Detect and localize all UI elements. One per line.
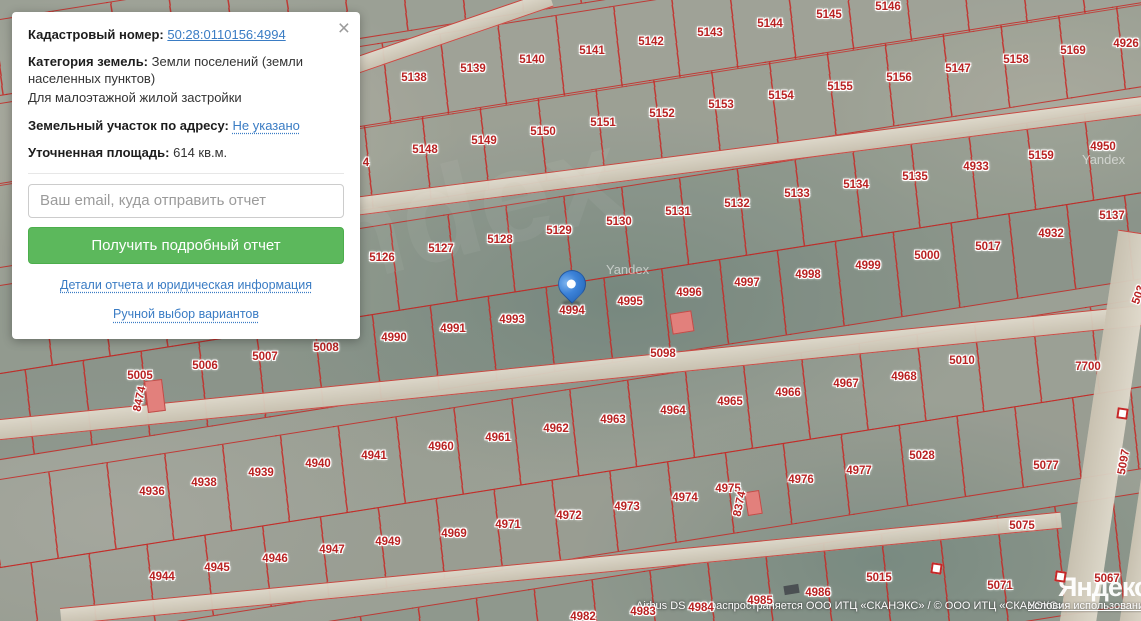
parcel-label[interactable]: 4933	[963, 161, 989, 173]
parcel-label[interactable]: 4950	[1090, 141, 1116, 153]
parcel-label[interactable]: 4962	[543, 423, 569, 435]
parcel-label[interactable]: 5126	[369, 252, 395, 264]
parcel-label[interactable]: 4967	[833, 378, 859, 390]
parcel-label[interactable]: 5129	[546, 225, 572, 237]
parcel-label[interactable]: 4968	[891, 371, 917, 383]
parcel-label[interactable]: 5153	[708, 99, 734, 111]
parcel-label[interactable]: 4976	[788, 474, 814, 486]
cadastral-number-line: Кадастровый номер: 50:28:0110156:4994	[28, 26, 344, 43]
vertex-marker	[1116, 407, 1128, 419]
parcel-label[interactable]: 4944	[149, 571, 175, 583]
parcel-label[interactable]: 5142	[638, 36, 664, 48]
parcel-label[interactable]: 4965	[717, 396, 743, 408]
parcel-label[interactable]: 5147	[945, 63, 971, 75]
divider	[28, 173, 344, 174]
land-category-line: Категория земель: Земли поселений (земли…	[28, 53, 344, 87]
parcel-label[interactable]: 4998	[795, 269, 821, 281]
building-footprint	[144, 379, 166, 413]
cadastral-number-link[interactable]: 50:28:0110156:4994	[167, 27, 285, 42]
parcel-label[interactable]: 7700	[1075, 361, 1101, 373]
report-details-link[interactable]: Детали отчета и юридическая информация	[60, 278, 312, 292]
parcel-label[interactable]: 5139	[460, 63, 486, 75]
get-report-button[interactable]: Получить подробный отчет	[28, 227, 344, 264]
building-footprint	[669, 310, 694, 334]
parcel-label[interactable]: 5140	[519, 54, 545, 66]
manual-link-line: Ручной выбор вариантов	[28, 306, 344, 323]
parcel-info-popup: × Кадастровый номер: 50:28:0110156:4994 …	[12, 12, 360, 339]
cadastral-number-label: Кадастровый номер:	[28, 27, 164, 42]
parcel-label[interactable]: 5152	[649, 108, 675, 120]
parcel-label[interactable]: 5159	[1028, 150, 1054, 162]
parcel-label[interactable]: 4982	[570, 611, 596, 621]
parcel-label[interactable]: 5007	[252, 351, 278, 363]
address-label: Земельный участок по адресу:	[28, 118, 229, 133]
parcel-label[interactable]: 5067	[1094, 573, 1120, 585]
parcel-label[interactable]: 5155	[827, 81, 853, 93]
address-line: Земельный участок по адресу: Не указано	[28, 117, 344, 134]
parcel-label[interactable]: 5151	[590, 117, 616, 129]
parcel-label[interactable]: 4984	[688, 602, 714, 614]
parcel-label[interactable]: 4972	[556, 510, 582, 522]
parcel-label[interactable]: 5158	[1003, 54, 1029, 66]
parcel-label[interactable]: 5143	[697, 27, 723, 39]
parcel-label[interactable]: 4991	[440, 323, 466, 335]
parcel-label[interactable]: 5005	[127, 370, 153, 382]
parcel-label[interactable]: 4941	[361, 450, 387, 462]
parcel-label[interactable]: 5028	[909, 450, 935, 462]
parcel-label[interactable]: 5008	[313, 342, 339, 354]
vertex-marker	[1054, 570, 1066, 582]
parcel-label[interactable]: 5148	[412, 144, 438, 156]
parcel-label[interactable]: 5146	[875, 1, 901, 13]
parcel-label[interactable]: 4986	[805, 587, 831, 599]
parcel-label[interactable]: 4926	[1113, 38, 1139, 50]
terms-of-use-link[interactable]: Условия использования	[1028, 600, 1141, 612]
address-link[interactable]: Не указано	[232, 118, 299, 133]
parcel-label[interactable]: 4938	[191, 477, 217, 489]
parcel-label[interactable]: 4977	[846, 465, 872, 477]
parcel-label[interactable]: 4946	[262, 553, 288, 565]
parcel-label[interactable]: 5071	[987, 580, 1013, 592]
parcel-label[interactable]: 5006	[192, 360, 218, 372]
parcel-label[interactable]: 4969	[441, 528, 467, 540]
parcel-label[interactable]: 5154	[768, 90, 794, 102]
parcel-label[interactable]: 5128	[487, 234, 513, 246]
parcel-label[interactable]: 4973	[614, 501, 640, 513]
parcel-label[interactable]: 4932	[1038, 228, 1064, 240]
parcel-label[interactable]: 5145	[816, 9, 842, 21]
parcel-label[interactable]: 4	[363, 157, 369, 169]
parcel-label[interactable]: 5133	[784, 188, 810, 200]
permitted-use-line: Для малоэтажной жилой застройки	[28, 89, 344, 106]
parcel-label[interactable]: 5137	[1099, 210, 1125, 222]
parcel-label[interactable]: 5144	[757, 18, 783, 30]
parcel-label[interactable]: 4996	[676, 287, 702, 299]
parcel-label[interactable]: 4963	[600, 414, 626, 426]
parcel-label[interactable]: 5141	[579, 45, 605, 57]
parcel-label[interactable]: 4936	[139, 486, 165, 498]
parcel-label[interactable]: 4990	[381, 332, 407, 344]
parcel-label[interactable]: 5156	[886, 72, 912, 84]
parcel-label[interactable]: 4983	[630, 606, 656, 618]
parcel-label[interactable]: 4939	[248, 467, 274, 479]
parcel-label[interactable]: 5010	[949, 355, 975, 367]
parcel-label[interactable]: 5149	[471, 135, 497, 147]
parcel-label[interactable]: 4960	[428, 441, 454, 453]
parcel-label[interactable]: 4940	[305, 458, 331, 470]
parcel-label[interactable]: 4966	[775, 387, 801, 399]
area-value: 614 кв.м.	[173, 145, 227, 160]
parcel-label[interactable]: 5169	[1060, 45, 1086, 57]
parcel-label[interactable]: 4945	[204, 562, 230, 574]
email-input[interactable]	[28, 184, 344, 218]
parcel-label[interactable]: 5135	[902, 171, 928, 183]
parcel-label[interactable]: 5138	[401, 72, 427, 84]
parcel-label[interactable]: 5127	[428, 243, 454, 255]
parcel-label[interactable]: 5017	[975, 241, 1001, 253]
parcel-label[interactable]: 4971	[495, 519, 521, 531]
yandex-watermark: Yandex	[606, 262, 649, 277]
parcel-label[interactable]: 4964	[660, 405, 686, 417]
area-line: Уточненная площадь: 614 кв.м.	[28, 144, 344, 161]
parcel-label[interactable]: 5130	[606, 216, 632, 228]
parcel-label[interactable]: 5077	[1033, 460, 1059, 472]
details-link-line: Детали отчета и юридическая информация	[28, 277, 344, 294]
parcel-label[interactable]: 4974	[672, 492, 698, 504]
parcel-label[interactable]: 5134	[843, 179, 869, 191]
parcel-label[interactable]: 5015	[866, 572, 892, 584]
parcel-label[interactable]: 5150	[530, 126, 556, 138]
vertex-marker	[930, 562, 942, 574]
parcel-label[interactable]: 4947	[319, 544, 345, 556]
manual-select-link[interactable]: Ручной выбор вариантов	[113, 307, 259, 321]
parcel-label[interactable]: 5131	[665, 206, 691, 218]
parcel-label[interactable]: 4993	[499, 314, 525, 326]
parcel-label[interactable]: 4995	[617, 296, 643, 308]
land-category-label: Категория земель:	[28, 54, 148, 69]
close-icon[interactable]: ×	[338, 18, 350, 39]
parcel-label[interactable]: 4985	[747, 595, 773, 607]
parcel-label[interactable]: 4949	[375, 536, 401, 548]
yandex-watermark: Yandex	[1082, 152, 1125, 167]
parcel-label[interactable]: 5098	[650, 348, 676, 360]
parcel-label[interactable]: 5075	[1009, 520, 1035, 532]
parcel-label[interactable]: 4999	[855, 260, 881, 272]
parcel-label[interactable]: 4961	[485, 432, 511, 444]
parcel-label[interactable]: 5000	[914, 250, 940, 262]
parcel-label[interactable]: 4997	[734, 277, 760, 289]
area-label: Уточненная площадь:	[28, 145, 169, 160]
parcel-label[interactable]: 5132	[724, 198, 750, 210]
